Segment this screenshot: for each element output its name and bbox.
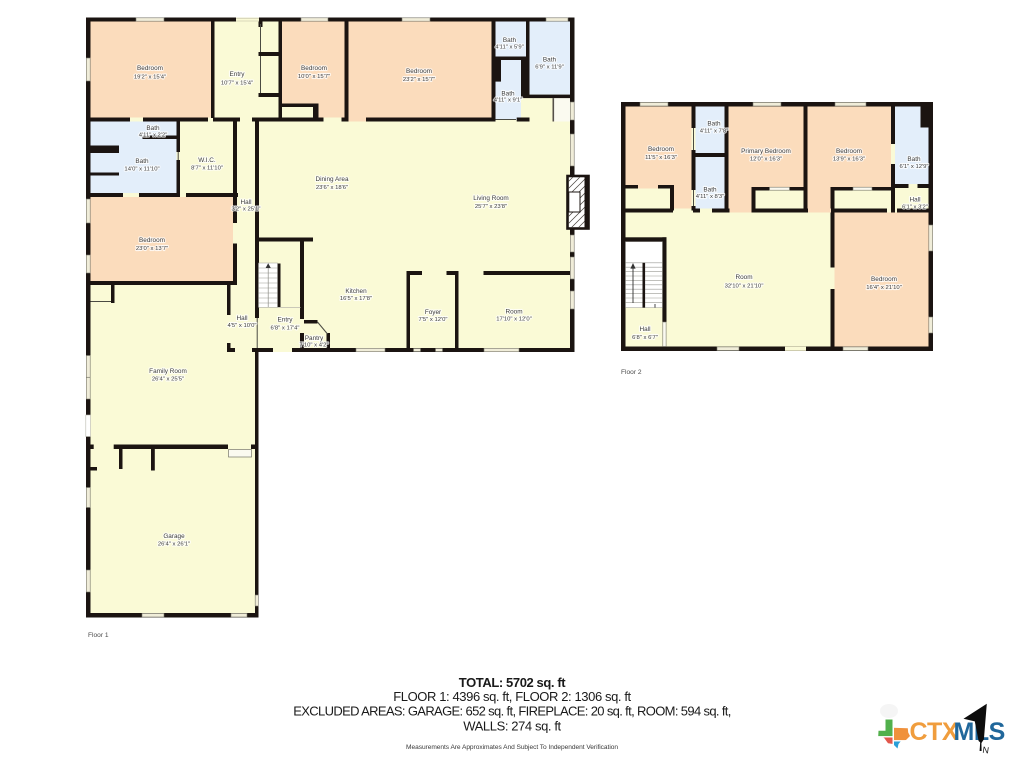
svg-text:Room: Room (735, 274, 752, 281)
svg-text:7'5" x 12'0": 7'5" x 12'0" (418, 317, 447, 323)
svg-text:Bath: Bath (907, 156, 921, 163)
svg-text:Primary Bedroom: Primary Bedroom (741, 148, 791, 155)
svg-text:Hall: Hall (236, 315, 247, 322)
svg-text:12'0" x 16'3": 12'0" x 16'3" (750, 157, 782, 163)
svg-text:11'5" x 16'3": 11'5" x 16'3" (645, 155, 677, 161)
svg-text:Living Room: Living Room (473, 195, 509, 202)
svg-text:Bath: Bath (146, 125, 160, 132)
svg-text:23'2" x 15'7": 23'2" x 15'7" (403, 77, 435, 83)
svg-text:10'7" x 15'4": 10'7" x 15'4" (221, 81, 253, 87)
svg-text:19'2" x 15'4": 19'2" x 15'4" (134, 75, 166, 81)
svg-text:10'0" x 15'7": 10'0" x 15'7" (298, 74, 330, 80)
svg-text:W.I.C.: W.I.C. (198, 157, 216, 164)
svg-text:23'0" x 13'7": 23'0" x 13'7" (136, 246, 168, 252)
svg-text:23'6" x 18'6": 23'6" x 18'6" (316, 185, 348, 191)
svg-text:4'11" x 7'8": 4'11" x 7'8" (700, 129, 729, 135)
svg-text:6'9" x 11'9": 6'9" x 11'9" (535, 65, 564, 71)
svg-text:26'4" x 25'5": 26'4" x 25'5" (152, 377, 184, 383)
svg-text:CTX: CTX (910, 718, 959, 746)
svg-text:Hall: Hall (639, 326, 650, 333)
svg-text:Bedroom: Bedroom (836, 148, 862, 155)
svg-text:Foyer: Foyer (425, 309, 442, 316)
svg-text:Floor 1: Floor 1 (88, 632, 109, 639)
svg-text:25'7" x 23'8": 25'7" x 23'8" (475, 204, 507, 210)
svg-text:32'10" x 21'10": 32'10" x 21'10" (725, 284, 764, 290)
svg-text:8'7" x 11'10": 8'7" x 11'10" (191, 166, 223, 172)
svg-text:16'5" x 17'8": 16'5" x 17'8" (340, 296, 372, 302)
svg-text:Hall: Hall (240, 199, 251, 206)
svg-text:Dining Area: Dining Area (315, 176, 348, 183)
svg-text:4'11" x 2'2": 4'11" x 2'2" (139, 133, 168, 139)
svg-text:N: N (982, 745, 990, 756)
svg-text:Kitchen: Kitchen (345, 288, 367, 295)
svg-text:Room: Room (505, 309, 522, 316)
svg-text:4'11" x 8'3": 4'11" x 8'3" (696, 194, 725, 200)
svg-text:Bath: Bath (543, 57, 557, 64)
svg-text:Bath: Bath (501, 91, 515, 98)
svg-text:Bath: Bath (135, 158, 149, 165)
svg-text:13'9" x 16'3": 13'9" x 16'3" (833, 157, 865, 163)
svg-text:7'10" x 4'2": 7'10" x 4'2" (299, 343, 328, 349)
svg-text:Bedroom: Bedroom (648, 146, 674, 153)
svg-text:Floor 2: Floor 2 (621, 369, 642, 376)
svg-text:Hall: Hall (909, 197, 920, 204)
svg-text:6'1" x 3'2": 6'1" x 3'2" (902, 205, 928, 211)
svg-text:6'8" x 6'7": 6'8" x 6'7" (632, 335, 658, 341)
svg-text:Entry: Entry (230, 71, 246, 78)
svg-text:Bedroom: Bedroom (406, 68, 432, 75)
svg-text:Bath: Bath (707, 121, 721, 128)
svg-text:Bedroom: Bedroom (871, 276, 897, 283)
svg-text:6'8" x 17'4": 6'8" x 17'4" (270, 326, 299, 332)
svg-text:EXCLUDED AREAS: GARAGE: 652 sq: EXCLUDED AREAS: GARAGE: 652 sq. ft, FIRE… (293, 704, 731, 719)
svg-text:Bedroom: Bedroom (301, 65, 327, 72)
svg-text:3'2" x 25'1": 3'2" x 25'1" (231, 207, 260, 213)
svg-text:Bath: Bath (703, 187, 717, 194)
svg-text:WALLS: 274 sq. ft: WALLS: 274 sq. ft (463, 719, 561, 734)
svg-text:Bedroom: Bedroom (137, 65, 163, 72)
svg-text:14'0" x 11'10": 14'0" x 11'10" (124, 167, 159, 173)
svg-text:TOTAL: 5702 sq. ft: TOTAL: 5702 sq. ft (459, 675, 567, 690)
svg-text:16'4" x 21'10": 16'4" x 21'10" (866, 285, 902, 291)
svg-text:Pantry: Pantry (305, 335, 324, 342)
svg-text:FLOOR 1: 4396 sq. ft, FLOOR 2:: FLOOR 1: 4396 sq. ft, FLOOR 2: 1306 sq. … (393, 689, 631, 704)
svg-text:4'5" x 10'0": 4'5" x 10'0" (227, 323, 256, 329)
svg-text:Entry: Entry (278, 317, 294, 324)
svg-text:Family Room: Family Room (149, 368, 187, 375)
svg-text:Bath: Bath (503, 37, 517, 44)
svg-text:Measurements Are Approximates: Measurements Are Approximates And Subjec… (406, 744, 618, 751)
svg-text:Garage: Garage (163, 533, 185, 540)
svg-text:4'11" x 9'1": 4'11" x 9'1" (494, 98, 523, 104)
svg-text:Bedroom: Bedroom (139, 237, 165, 244)
svg-text:6'1" x 12'9": 6'1" x 12'9" (899, 164, 928, 170)
svg-text:17'10" x 12'0": 17'10" x 12'0" (496, 317, 532, 323)
svg-text:4'11" x 5'9": 4'11" x 5'9" (495, 45, 524, 51)
svg-text:26'4" x 26'1": 26'4" x 26'1" (158, 542, 190, 548)
